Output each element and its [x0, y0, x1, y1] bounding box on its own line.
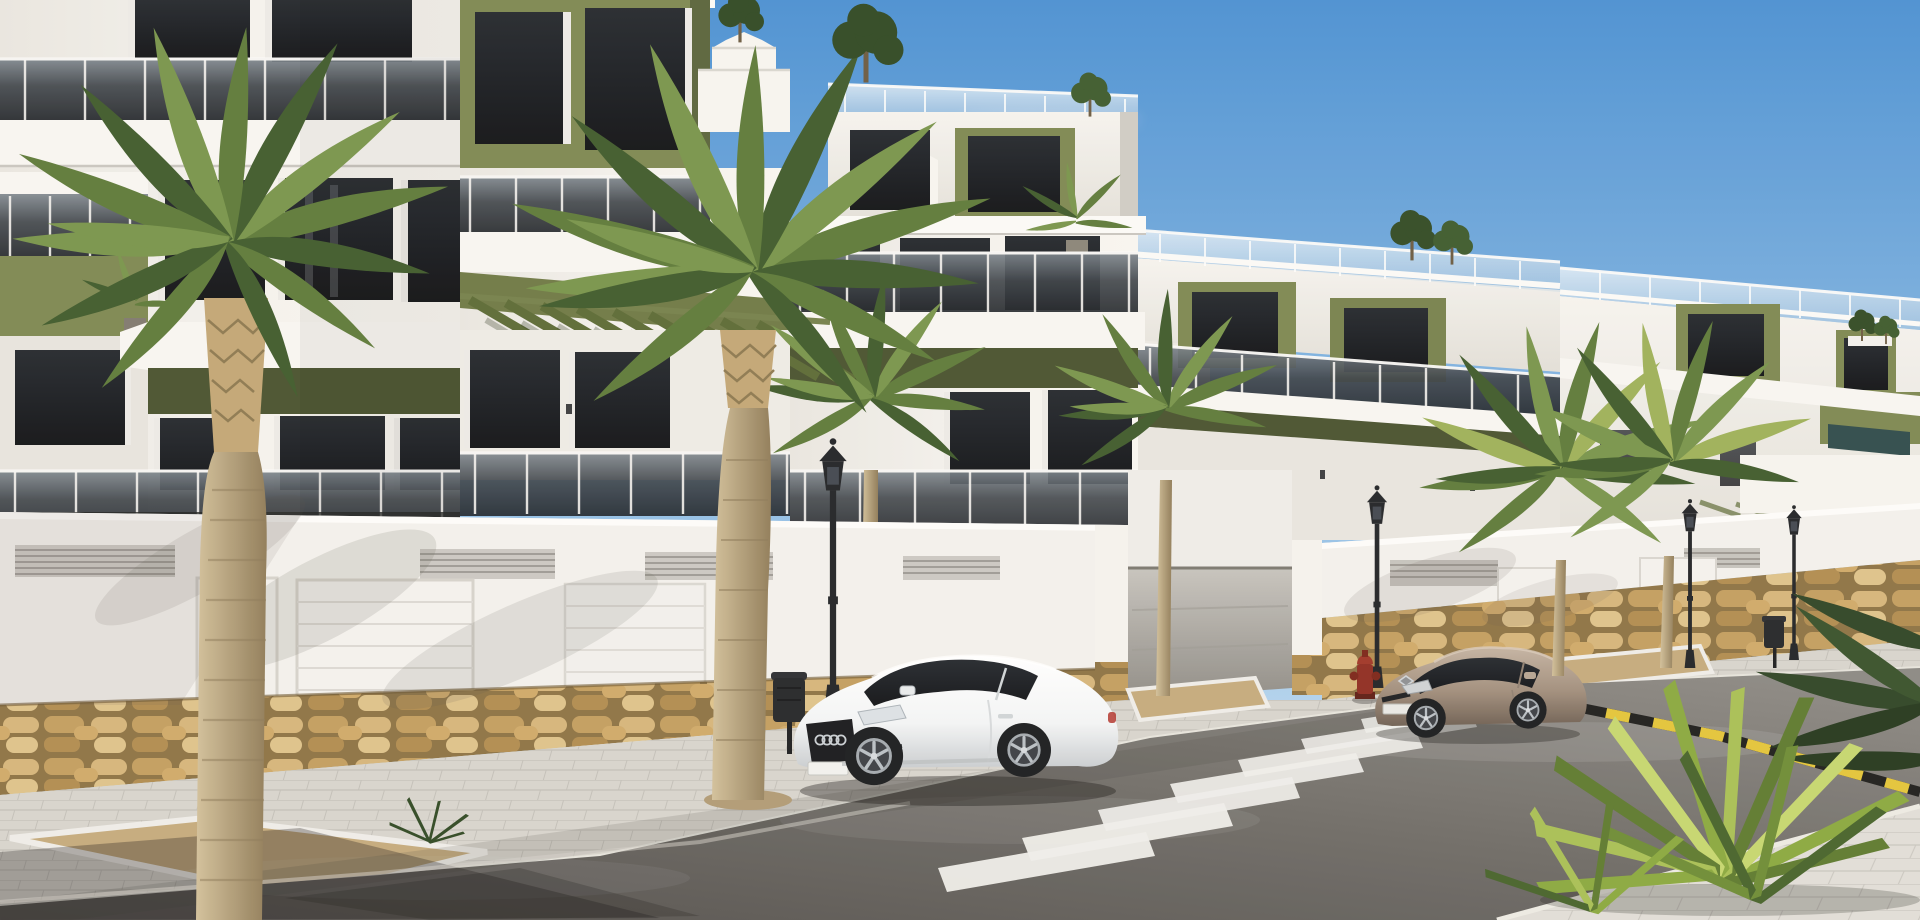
color-grade-overlay [0, 0, 1920, 920]
street-scene [0, 0, 1920, 920]
render-viewport [0, 0, 1920, 920]
